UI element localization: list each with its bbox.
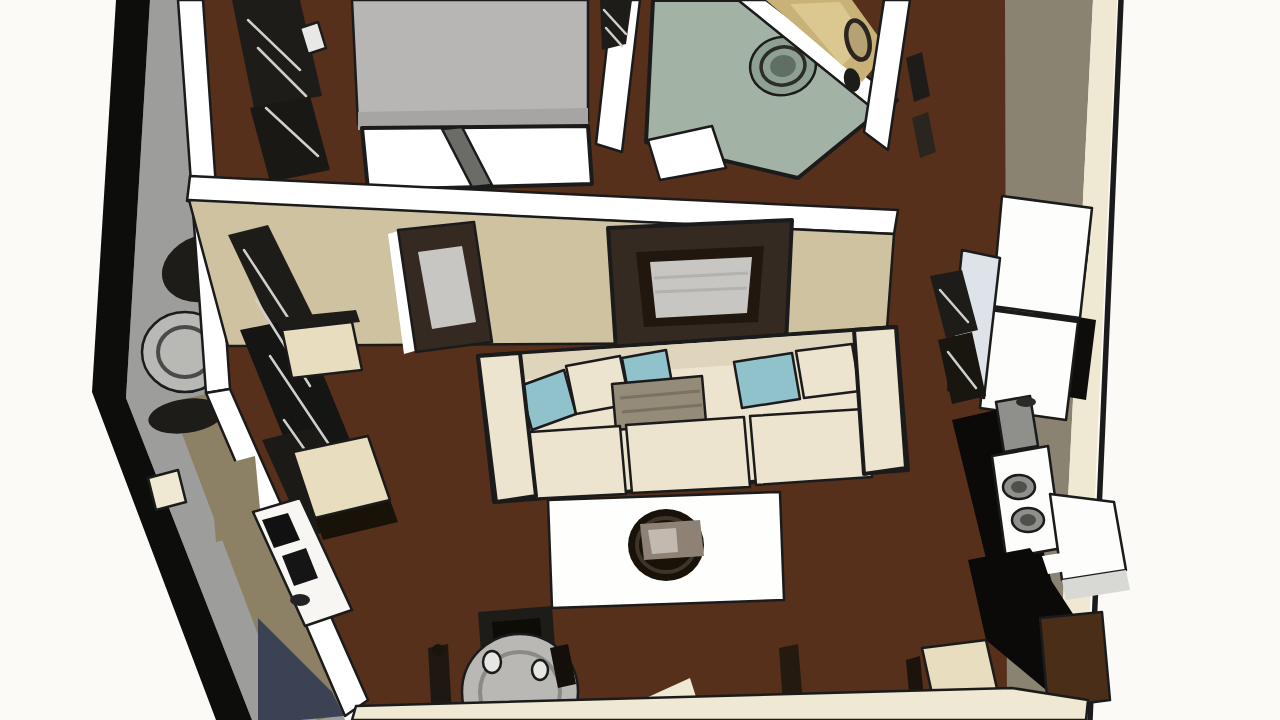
- patio-cushion: [148, 470, 186, 510]
- pillow-teal-3: [734, 353, 800, 408]
- pillow-cream-2: [796, 344, 860, 398]
- floorplan-canvas: [0, 0, 1280, 720]
- desk-side-face: [210, 456, 262, 542]
- sofa-armrest-right: [854, 327, 906, 474]
- bed: [352, 0, 588, 124]
- rug-group: [548, 492, 784, 608]
- seat-cushion-3: [750, 409, 872, 485]
- faucet: [1016, 397, 1036, 407]
- floorplan-rendering: [0, 0, 1280, 720]
- burner-2-center: [1020, 514, 1036, 526]
- mouse: [290, 594, 310, 606]
- counter-top-1: [992, 196, 1092, 318]
- tray-books: [648, 528, 678, 554]
- burner-1-center: [1011, 481, 1027, 493]
- accent-chair: [282, 322, 362, 378]
- seat-cushion-2: [626, 417, 750, 493]
- sofa: [478, 327, 908, 502]
- bedroom: [232, 0, 592, 190]
- wine-glass-2: [532, 660, 548, 680]
- wine-glass-1: [483, 651, 501, 673]
- chair-knob: [432, 644, 444, 656]
